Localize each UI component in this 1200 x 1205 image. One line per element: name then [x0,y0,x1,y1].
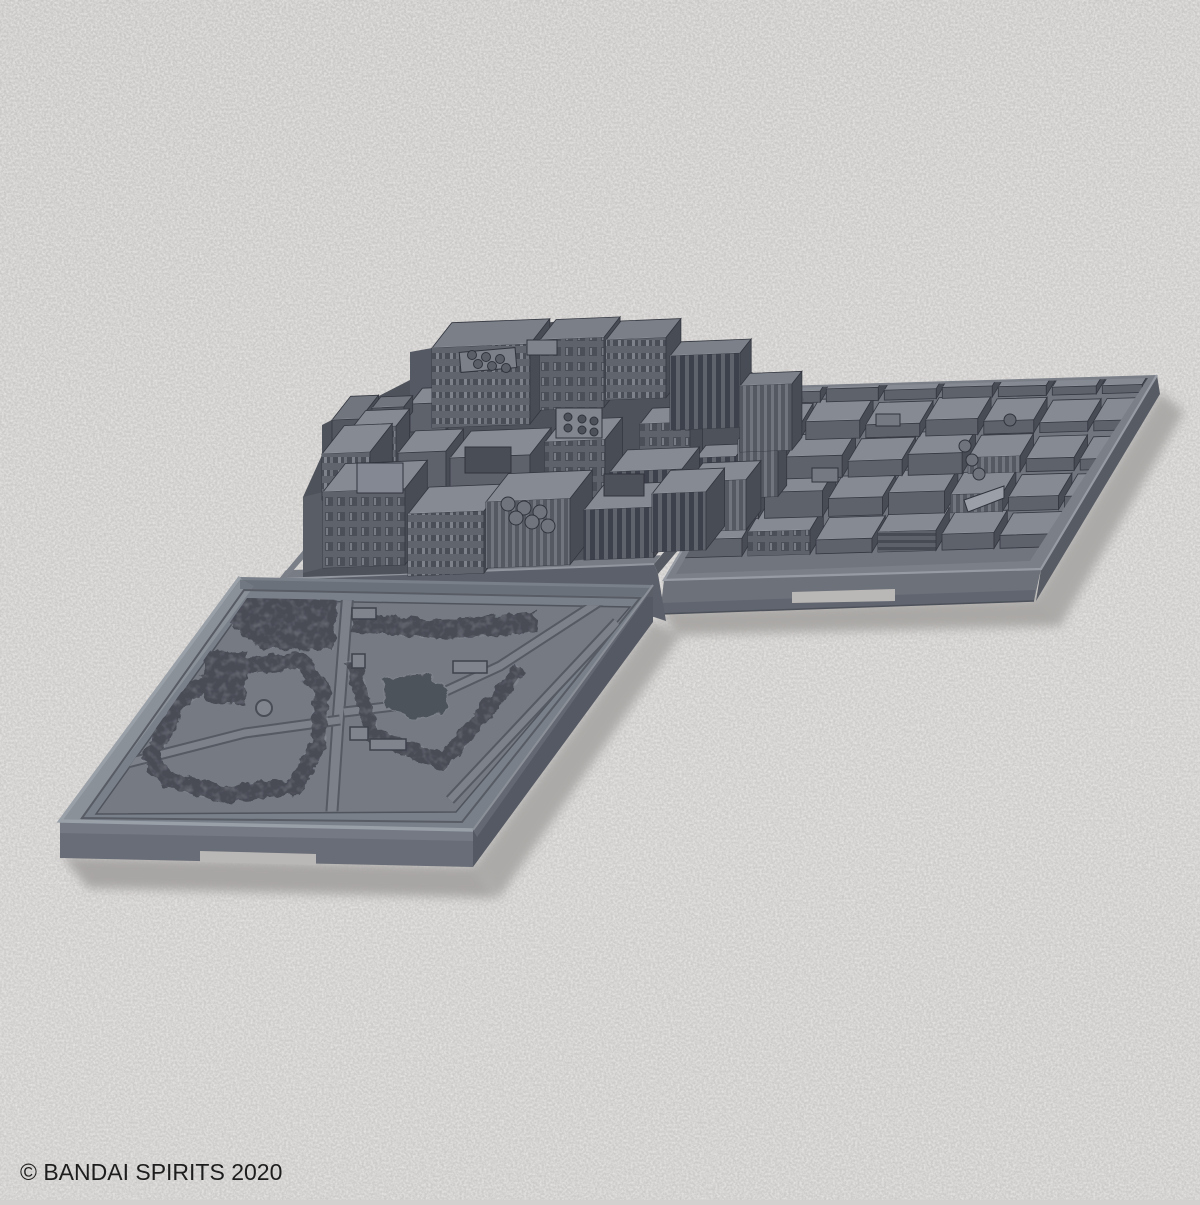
svg-text:© BANDAI SPIRITS 2020: © BANDAI SPIRITS 2020 [20,1159,282,1185]
